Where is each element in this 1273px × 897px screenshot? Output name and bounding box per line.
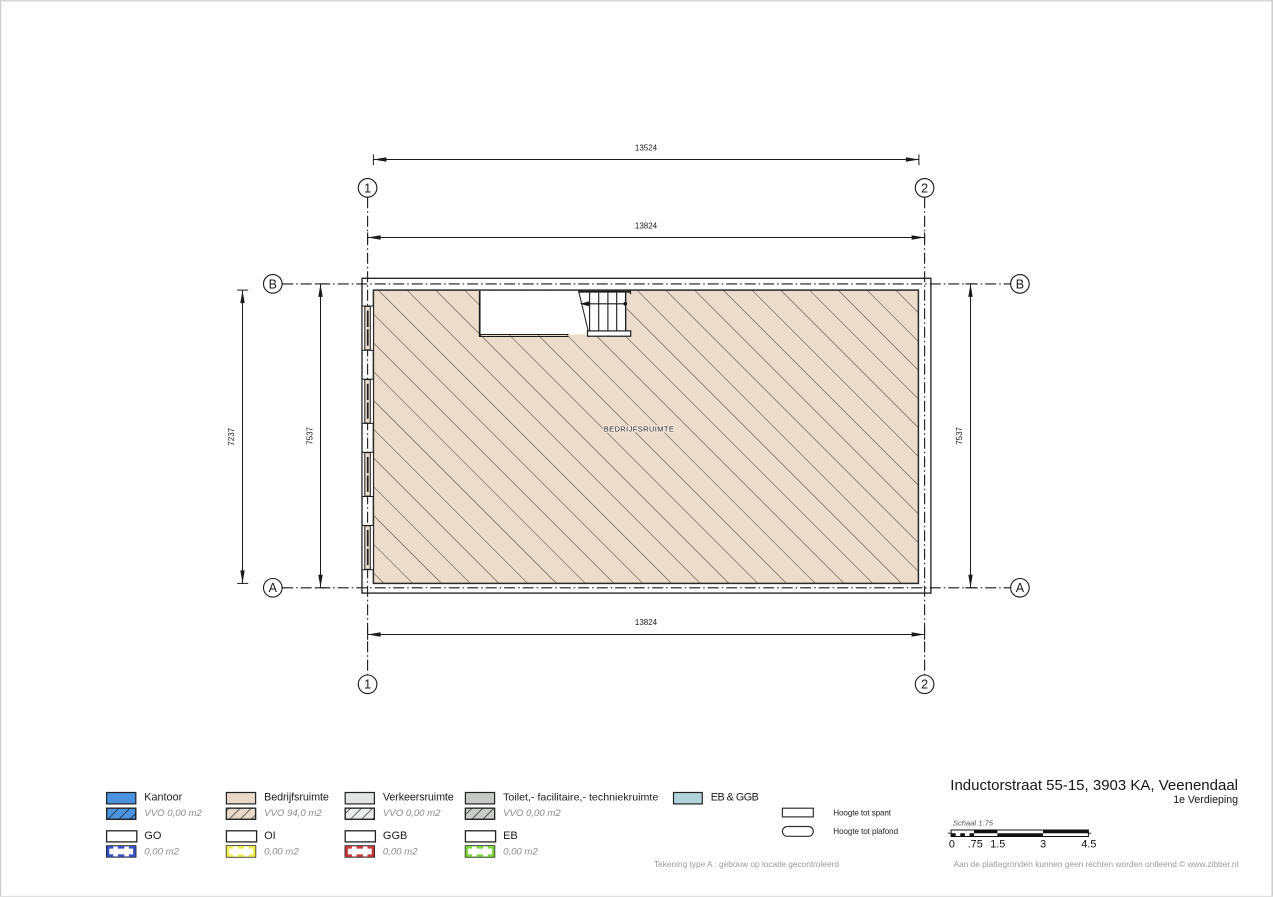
svg-text:0,00 m2: 0,00 m2 <box>503 847 538 858</box>
svg-text:OI: OI <box>264 830 276 842</box>
svg-text:0,00 m2: 0,00 m2 <box>264 847 299 858</box>
svg-text:0,00 m2: 0,00 m2 <box>383 847 418 858</box>
svg-text:Tekening type A : gebouw op lo: Tekening type A : gebouw op locatie geco… <box>654 859 839 869</box>
svg-text:0: 0 <box>949 839 955 851</box>
svg-text:3: 3 <box>1040 839 1046 851</box>
svg-text:7537: 7537 <box>955 426 964 444</box>
svg-text:Hoogte tot plafond: Hoogte tot plafond <box>833 827 898 836</box>
svg-text:Aan de plattegronden kunnen ge: Aan de plattegronden kunnen geen rechten… <box>954 859 1239 869</box>
svg-text:BEDRIJFSRUIMTE: BEDRIJFSRUIMTE <box>604 425 675 434</box>
svg-text:0,00 m2: 0,00 m2 <box>144 847 179 858</box>
svg-text:A: A <box>1016 581 1025 595</box>
svg-text:Kantoor: Kantoor <box>144 792 182 804</box>
svg-text:EB: EB <box>503 830 518 842</box>
svg-text:7537: 7537 <box>305 426 314 444</box>
svg-text:4.5: 4.5 <box>1081 839 1096 851</box>
svg-text:.75: .75 <box>968 839 983 851</box>
svg-text:1.5: 1.5 <box>990 839 1005 851</box>
svg-text:13524: 13524 <box>635 144 658 153</box>
svg-text:1e Verdieping: 1e Verdieping <box>1173 794 1238 806</box>
svg-text:VVO 94,0 m2: VVO 94,0 m2 <box>264 808 322 819</box>
svg-text:Verkeersruimte: Verkeersruimte <box>383 792 454 804</box>
svg-text:B: B <box>1016 277 1024 291</box>
svg-text:2: 2 <box>921 181 928 195</box>
svg-text:B: B <box>269 277 277 291</box>
svg-text:Schaal 1:75: Schaal 1:75 <box>953 818 994 827</box>
svg-text:Bedrijfsruimte: Bedrijfsruimte <box>264 792 329 804</box>
svg-text:Hoogte tot spant: Hoogte tot spant <box>833 809 891 818</box>
svg-text:Toilet,- facilitaire,- technie: Toilet,- facilitaire,- techniekruimte <box>503 793 658 804</box>
svg-text:A: A <box>269 581 278 595</box>
svg-text:EB & GGB: EB & GGB <box>711 792 759 804</box>
svg-text:VVO 0,00 m2: VVO 0,00 m2 <box>144 808 202 819</box>
svg-text:Inductorstraat 55-15, 3903 KA,: Inductorstraat 55-15, 3903 KA, Veenendaa… <box>950 777 1238 794</box>
svg-text:1: 1 <box>364 678 371 692</box>
svg-text:2: 2 <box>921 678 928 692</box>
svg-text:7237: 7237 <box>227 427 236 445</box>
svg-text:GO: GO <box>144 830 162 842</box>
svg-text:VVO 0,00 m2: VVO 0,00 m2 <box>503 808 561 819</box>
svg-text:13824: 13824 <box>635 618 658 627</box>
svg-text:1: 1 <box>364 181 371 195</box>
svg-text:GGB: GGB <box>383 830 407 842</box>
svg-text:13824: 13824 <box>635 222 658 231</box>
svg-text:VVO 0,00 m2: VVO 0,00 m2 <box>383 808 441 819</box>
